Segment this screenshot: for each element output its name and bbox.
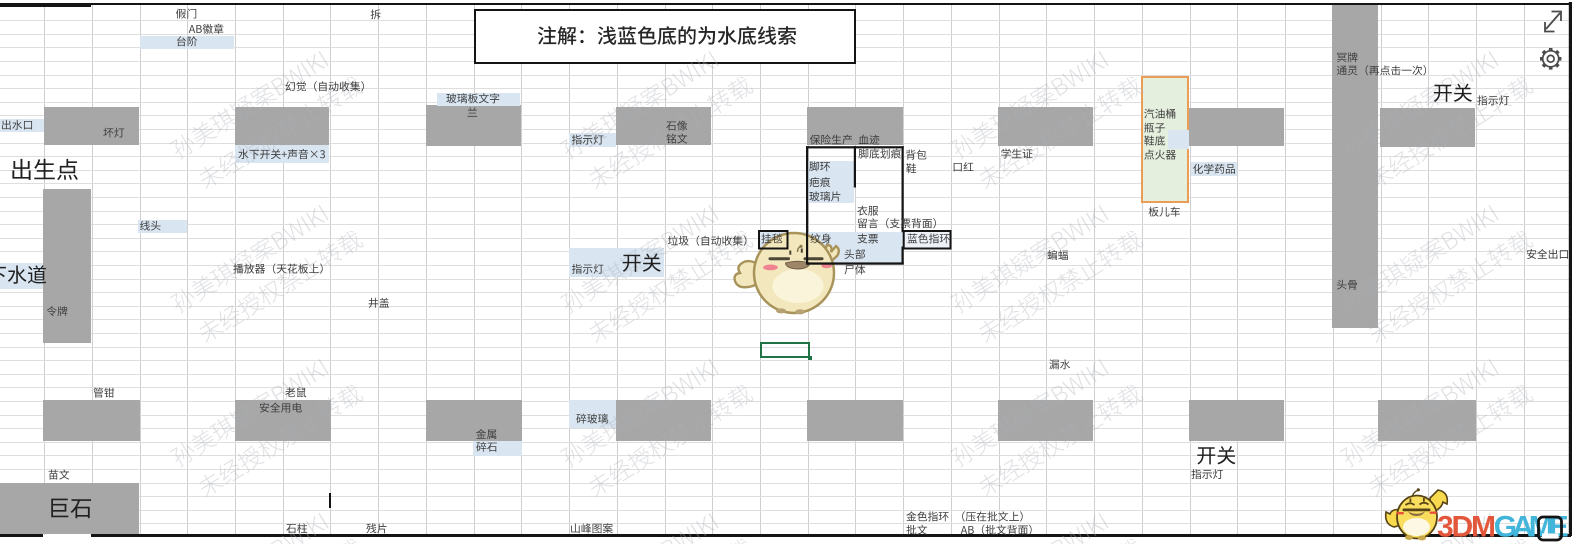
svg-text:3DMGAME: 3DMGAME [1437, 511, 1568, 544]
